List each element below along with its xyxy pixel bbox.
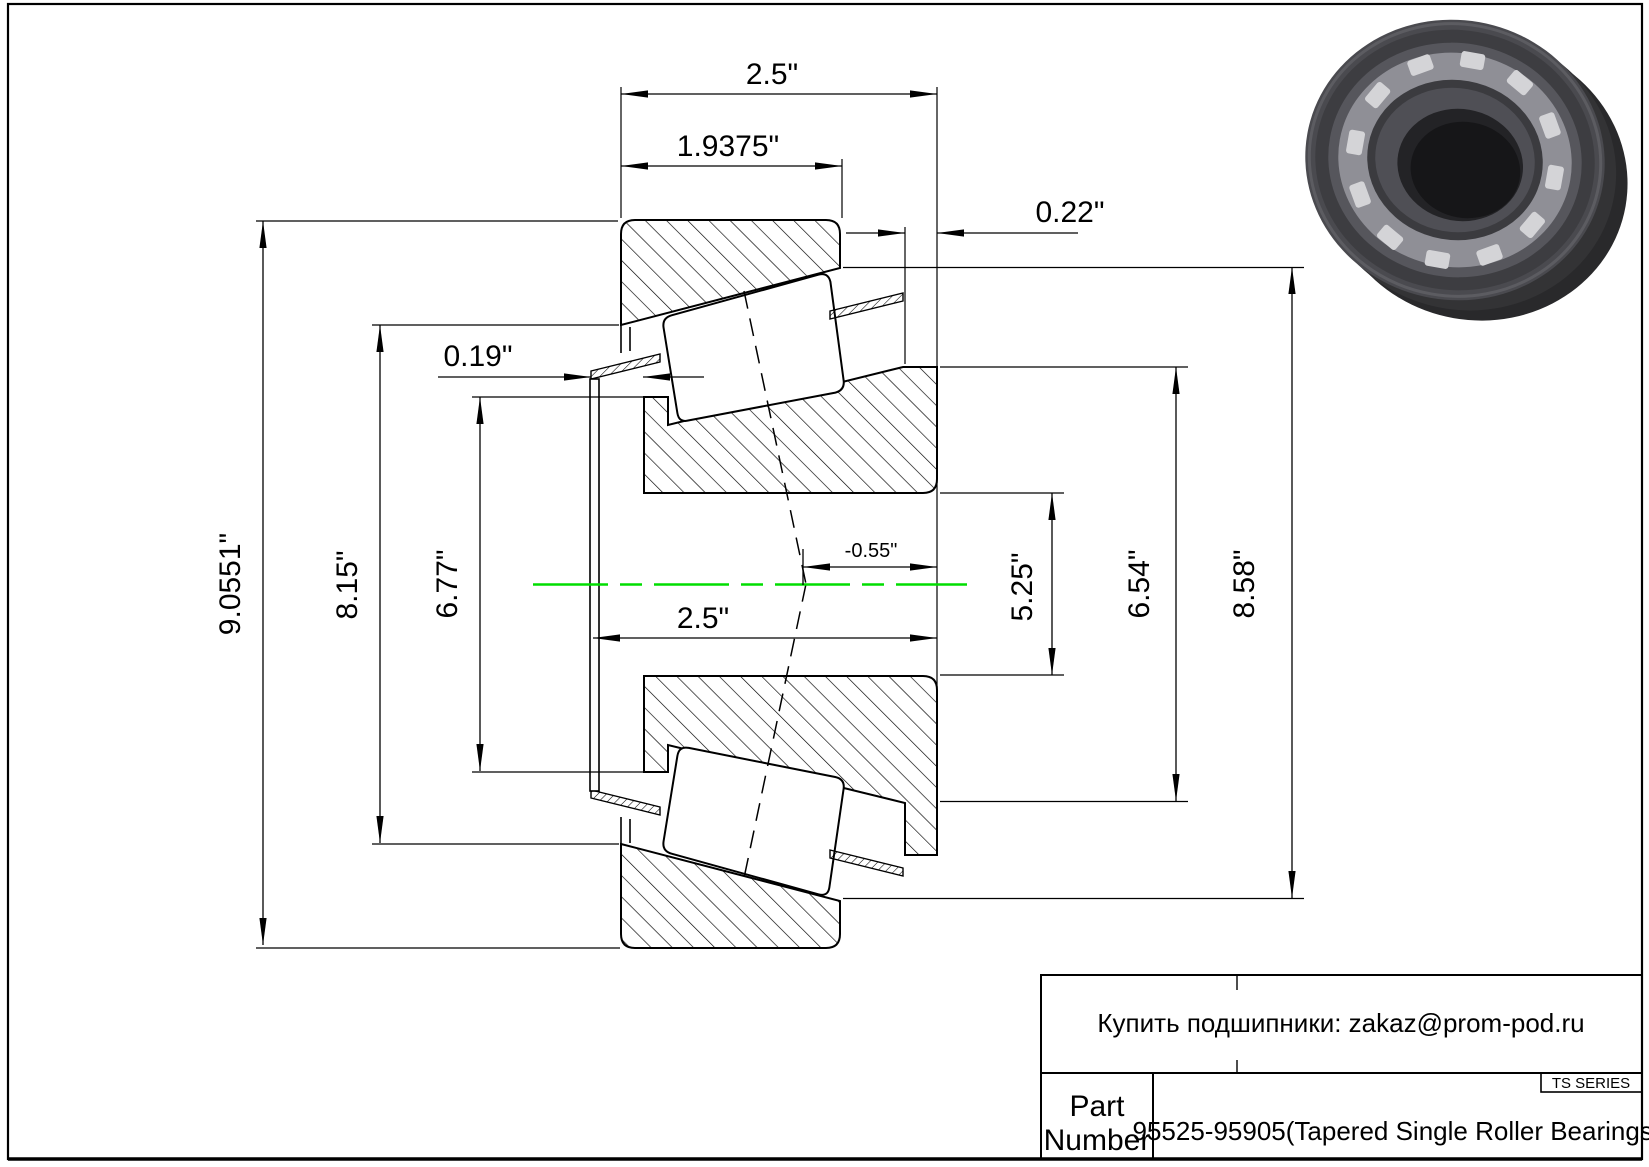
dimension-cup-outer-diameter: 8.58" xyxy=(1228,267,1292,898)
dim-label-cup-width: 1.9375" xyxy=(677,130,779,163)
series-badge: TS SERIES xyxy=(1552,1075,1630,1092)
part-number-value: 95525-95905(Tapered Single Roller Bearin… xyxy=(1132,1116,1649,1146)
dimension-flinger-standout: 0.19" xyxy=(438,340,704,377)
contact-text: Купить подшипники: zakaz@prom-pod.ru xyxy=(1097,1008,1584,1038)
dim-label-effective-center: -0.55" xyxy=(845,540,898,562)
dimension-effective-center: -0.55" xyxy=(803,540,937,585)
dim-label-max-outer-diameter: 9.0551" xyxy=(214,533,247,635)
dimension-cone-front-diameter: 6.77" xyxy=(431,397,480,771)
dim-label-cone-front-diameter: 6.77" xyxy=(431,549,464,618)
title-block: Купить подшипники: zakaz@prom-pod.ru TS … xyxy=(1041,975,1649,1159)
dim-label-cup-raceway-diameter: 8.15" xyxy=(331,550,364,619)
dim-label-bore-reference-diameter: 5.25" xyxy=(1006,552,1039,621)
dim-label-cone-width: 2.5" xyxy=(677,602,729,635)
dim-label-flinger-standout: 0.19" xyxy=(443,340,512,373)
dim-label-cone-back-diameter: 6.54" xyxy=(1123,549,1156,618)
part-number-label-line1: Part xyxy=(1069,1090,1125,1123)
dim-label-cup-outer-diameter: 8.58" xyxy=(1228,549,1261,618)
dimension-cup-front-standout: 0.22" xyxy=(846,196,1105,233)
dim-label-cup-front-standout: 0.22" xyxy=(1035,196,1104,229)
dimension-bore-reference-diameter: 5.25" xyxy=(1006,493,1052,675)
dimension-cone-back-diameter: 6.54" xyxy=(1123,367,1176,801)
dimension-overall-width-top: 2.5" xyxy=(621,58,937,94)
drawing-canvas: 2.5" 1.9375" 0.22" 0.19" 9.0551" 8.15" 6… xyxy=(0,0,1649,1167)
bearing-3d-image xyxy=(1280,0,1649,344)
dim-label-overall-width-top: 2.5" xyxy=(746,58,798,91)
dimension-cup-raceway-diameter: 8.15" xyxy=(331,325,380,843)
bearing-cross-section xyxy=(590,87,937,948)
drawing-page: 2.5" 1.9375" 0.22" 0.19" 9.0551" 8.15" 6… xyxy=(0,0,1649,1167)
dimension-cone-width: 2.5" xyxy=(593,602,937,638)
dimension-cup-width: 1.9375" xyxy=(621,130,842,166)
dimension-max-outer-diameter: 9.0551" xyxy=(214,221,263,945)
